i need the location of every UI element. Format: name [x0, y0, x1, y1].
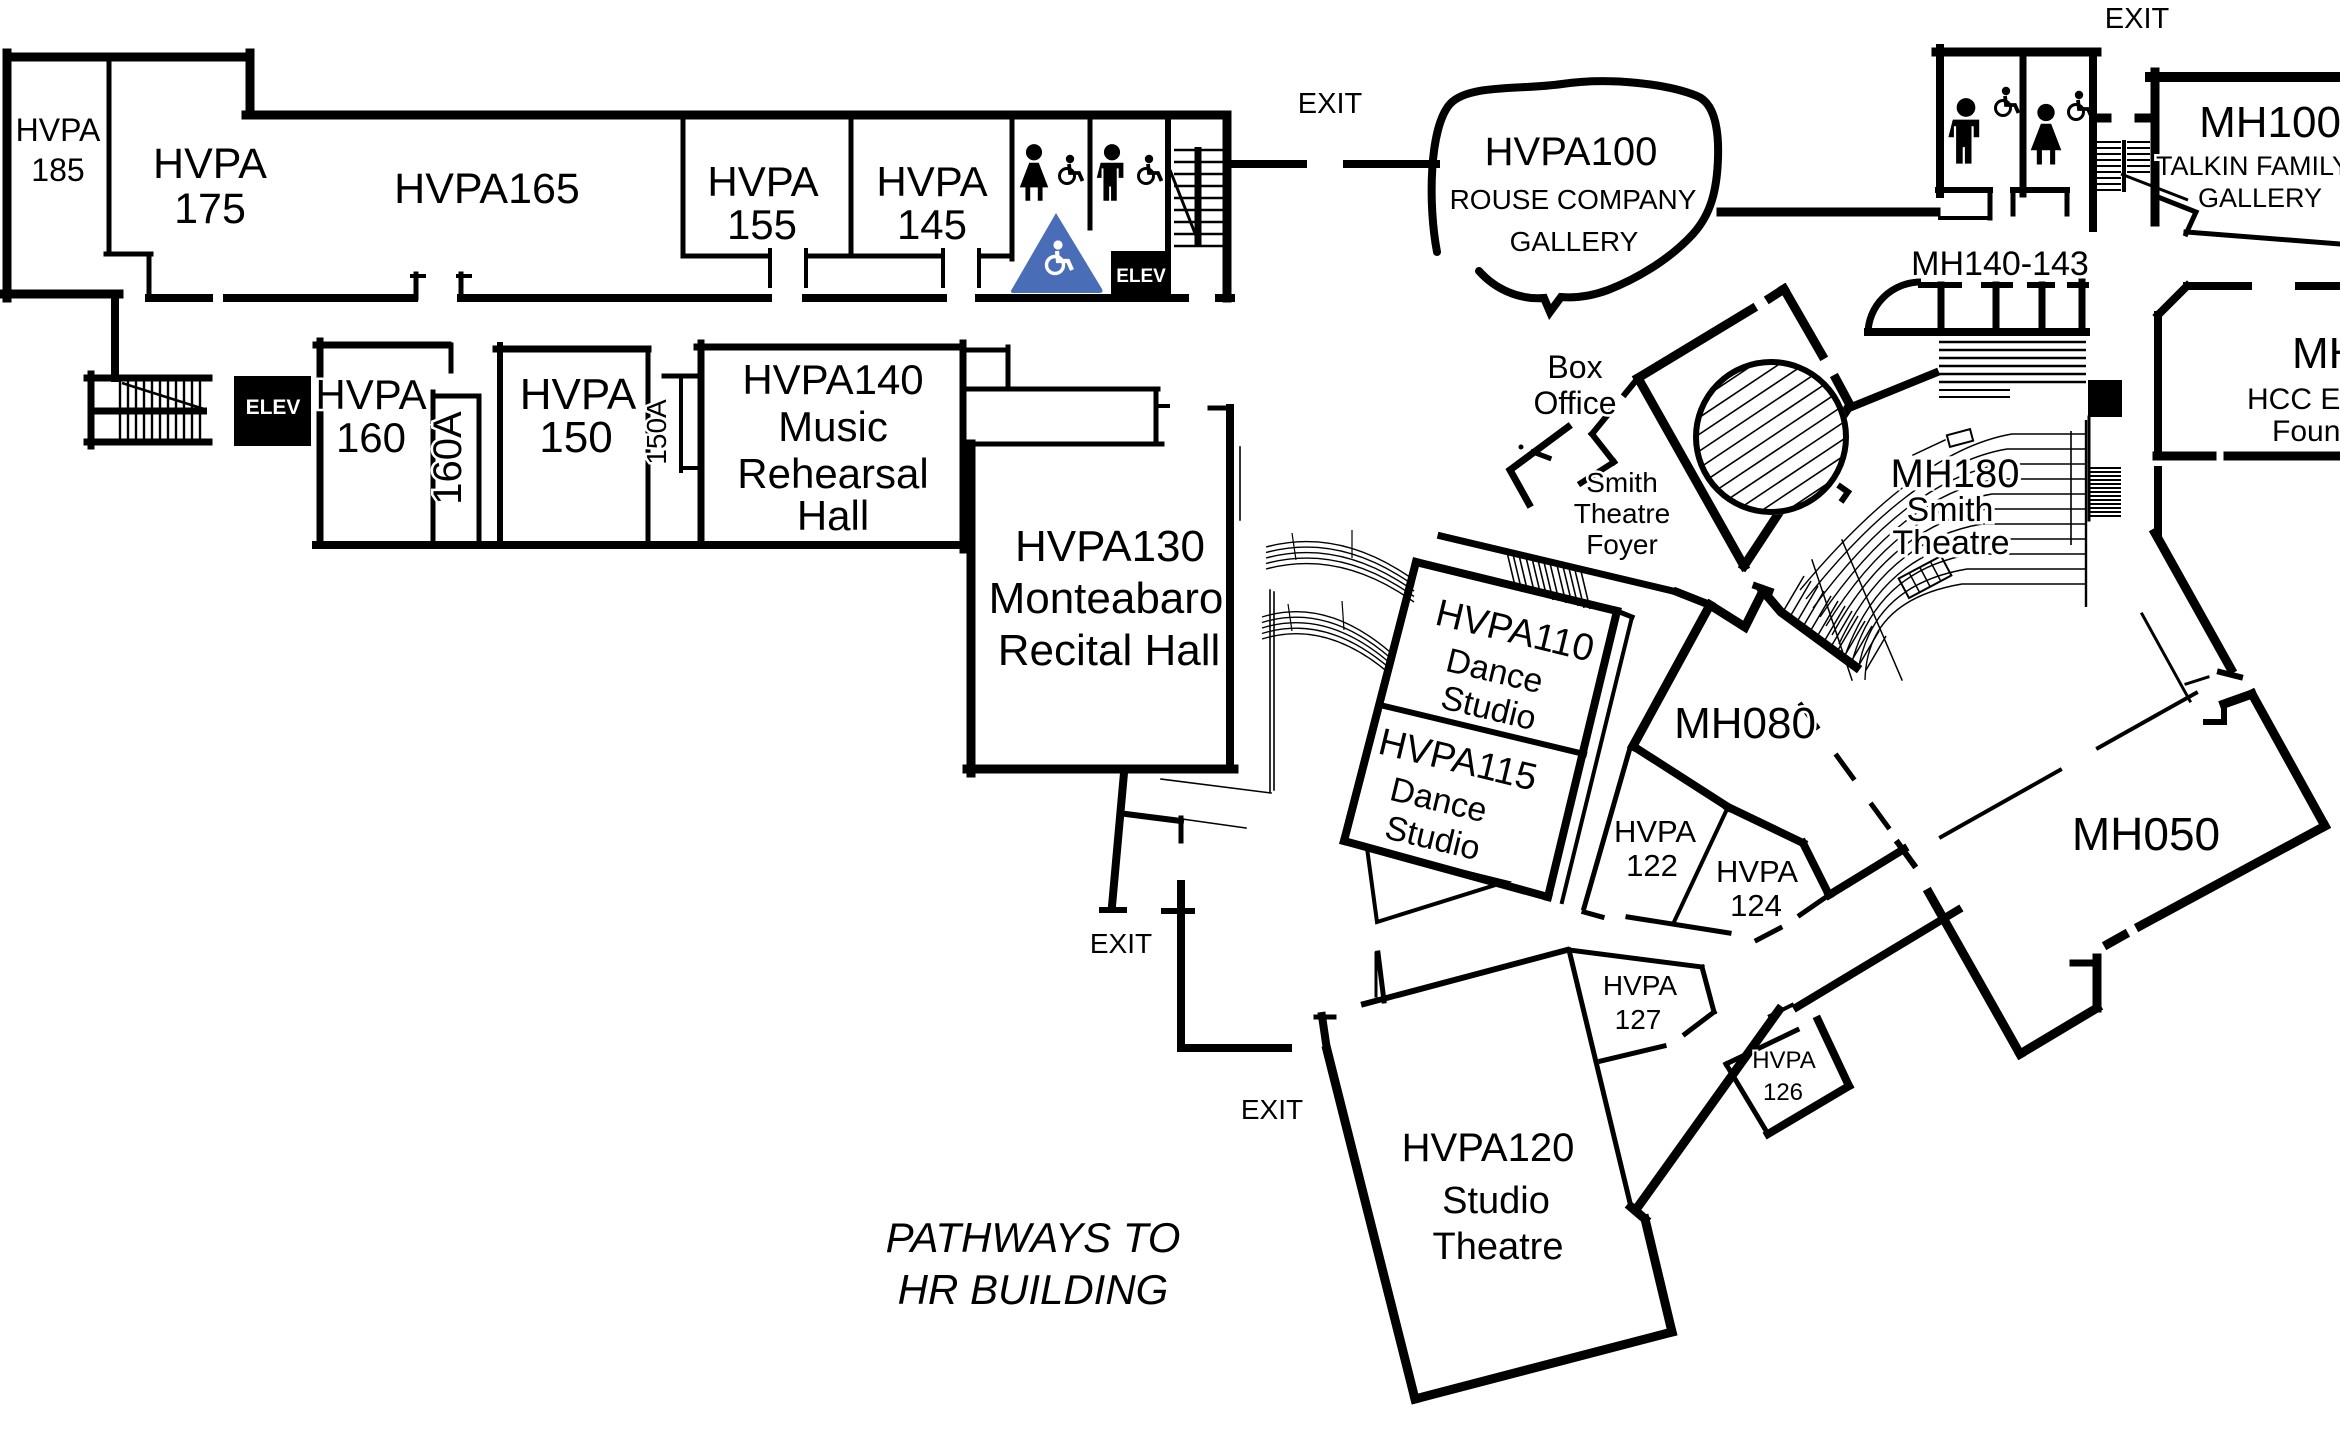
svg-text:Theatre: Theatre [1892, 524, 2009, 562]
svg-text:MH140-143: MH140-143 [1911, 245, 2089, 283]
svg-text:MH1: MH1 [2292, 329, 2340, 378]
svg-text:EXIT: EXIT [1090, 928, 1152, 959]
svg-text:HVPA120: HVPA120 [1402, 1126, 1575, 1170]
svg-text:GALLERY: GALLERY [1510, 226, 1639, 257]
svg-text:HVPA: HVPA [16, 112, 101, 148]
svg-text:HVPA: HVPA [1603, 970, 1677, 1001]
svg-text:HVPA140: HVPA140 [742, 356, 923, 403]
svg-text:GALLERY: GALLERY [2198, 183, 2322, 213]
svg-text:HVPA: HVPA [520, 370, 637, 419]
svg-text:160: 160 [336, 414, 406, 461]
svg-text:150: 150 [539, 413, 612, 462]
svg-text:Box: Box [1547, 349, 1602, 385]
svg-text:Hall: Hall [797, 492, 869, 539]
svg-text:Theatre: Theatre [1574, 498, 1671, 529]
svg-text:HVPA: HVPA [153, 140, 267, 188]
svg-text:124: 124 [1730, 888, 1782, 923]
svg-text:HVPA: HVPA [1614, 814, 1696, 849]
svg-text:HVPA: HVPA [1752, 1047, 1816, 1074]
svg-text:EXIT: EXIT [1241, 1094, 1303, 1125]
svg-text:MH180: MH180 [1891, 452, 2020, 496]
svg-text:155: 155 [727, 201, 797, 248]
svg-text:Music: Music [778, 403, 888, 450]
svg-text:Studio: Studio [1442, 1180, 1550, 1222]
svg-text:145: 145 [897, 201, 967, 248]
svg-text:Found: Found [2272, 415, 2340, 448]
svg-text:126: 126 [1763, 1079, 1803, 1106]
svg-text:HVPA: HVPA [1716, 854, 1798, 889]
svg-text:MH050: MH050 [2072, 808, 2220, 860]
svg-text:MH080: MH080 [1674, 699, 1816, 748]
svg-text:HVPA100: HVPA100 [1485, 130, 1658, 174]
svg-text:ELEV: ELEV [246, 396, 301, 419]
svg-text:150A: 150A [641, 399, 672, 465]
svg-text:ROUSE COMPANY: ROUSE COMPANY [1450, 184, 1697, 215]
svg-text:HVPA: HVPA [707, 158, 818, 205]
svg-text:Recital Hall: Recital Hall [998, 626, 1221, 675]
svg-text:Rehearsal: Rehearsal [737, 450, 928, 497]
svg-text:185: 185 [31, 152, 84, 188]
svg-text:160A: 160A [426, 411, 470, 505]
svg-text:HVPA130: HVPA130 [1015, 522, 1205, 571]
svg-text:MH100: MH100 [2199, 98, 2340, 147]
svg-text:HR BUILDING: HR BUILDING [898, 1266, 1169, 1313]
svg-text:ELEV: ELEV [1116, 266, 1166, 287]
svg-text:Office: Office [1534, 385, 1617, 421]
svg-text:Smith: Smith [1586, 467, 1658, 498]
svg-text:Monteabaro: Monteabaro [989, 574, 1224, 623]
svg-text:TALKIN FAMILY: TALKIN FAMILY [2156, 151, 2340, 181]
svg-text:HVPA: HVPA [315, 371, 426, 418]
svg-text:122: 122 [1626, 848, 1678, 883]
svg-text:HCC Edu: HCC Edu [2247, 383, 2340, 416]
svg-text:Foyer: Foyer [1586, 529, 1658, 560]
svg-text:HVPA: HVPA [876, 158, 987, 205]
svg-text:PATHWAYS TO: PATHWAYS TO [886, 1214, 1181, 1261]
svg-text:Theatre: Theatre [1433, 1226, 1564, 1268]
svg-text:HVPA165: HVPA165 [394, 165, 580, 213]
svg-text:175: 175 [174, 185, 246, 233]
svg-text:EXIT: EXIT [2105, 3, 2170, 35]
svg-text:127: 127 [1615, 1004, 1662, 1035]
svg-text:EXIT: EXIT [1298, 88, 1363, 120]
